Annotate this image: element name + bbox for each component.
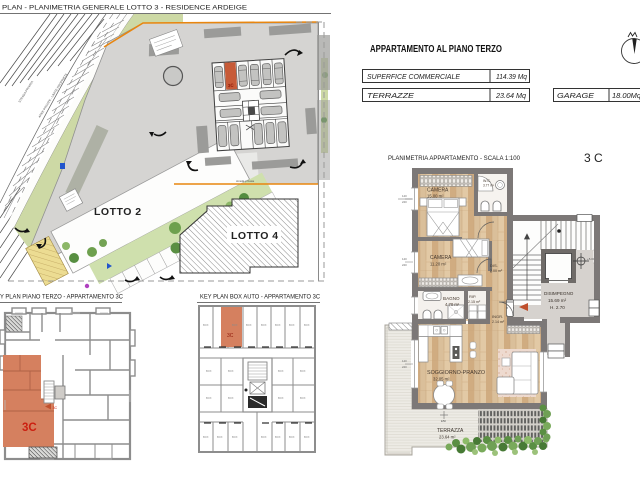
svg-text:BOX: BOX	[232, 323, 238, 327]
svg-text:140: 140	[402, 194, 407, 198]
svg-text:BOX: BOX	[246, 323, 252, 327]
svg-text:15.69 m²: 15.69 m²	[548, 298, 567, 303]
svg-text:PLANIMETRIA APPARTAMENTO - SC: PLANIMETRIA APPARTAMENTO - SCALA 1:100	[388, 155, 521, 162]
svg-text:LOTTO 2: LOTTO 2	[94, 206, 142, 218]
svg-text:KEY PLAN BOX AUTO - APPARTAMEN: KEY PLAN BOX AUTO - APPARTAMENTO 3C	[200, 295, 321, 301]
svg-text:RIP.: RIP.	[469, 294, 476, 299]
svg-text:4.70 m²: 4.70 m²	[445, 302, 460, 307]
svg-text:BOX: BOX	[228, 396, 234, 400]
svg-text:3C: 3C	[22, 422, 37, 434]
svg-text:2.00 m²: 2.00 m²	[490, 269, 503, 273]
svg-text:DISIMPEGNO: DISIMPEGNO	[544, 291, 574, 296]
svg-text:TERRAZZE: TERRAZZE	[367, 91, 414, 100]
svg-text:3.77 m²: 3.77 m²	[483, 184, 494, 188]
svg-text:23.64 Mq: 23.64 Mq	[495, 91, 527, 100]
svg-text:BOX: BOX	[217, 435, 223, 439]
svg-text:15.00 m²: 15.00 m²	[427, 194, 444, 199]
svg-text:E50: E50	[441, 419, 446, 423]
svg-text:INGR.: INGR.	[492, 314, 503, 319]
svg-text:PLAN - PLANIMETRIA GENERALE L: PLAN - PLANIMETRIA GENERALE LOTTO 3 - RE…	[2, 5, 247, 12]
svg-text:240: 240	[402, 263, 407, 267]
svg-text:240: 240	[402, 365, 407, 369]
svg-text:3C: 3C	[53, 406, 58, 410]
svg-text:AREE PRIVATE - LIMITE PROPRIET: AREE PRIVATE - LIMITE PROPRIETA	[37, 73, 68, 119]
svg-text:W.C.: W.C.	[483, 179, 491, 183]
svg-text:3 C: 3 C	[584, 151, 603, 165]
svg-text:18.00Mq: 18.00Mq	[612, 91, 640, 100]
svg-text:240: 240	[402, 200, 407, 204]
svg-text:STRADA PRIVATA: STRADA PRIVATA	[17, 80, 34, 103]
svg-text:BOX: BOX	[304, 435, 310, 439]
svg-text:BOX: BOX	[275, 435, 281, 439]
svg-text:TERRAZZA: TERRAZZA	[437, 428, 464, 434]
svg-text:DIS.: DIS.	[490, 263, 498, 268]
svg-text:BOX: BOX	[261, 435, 267, 439]
svg-text:BOX: BOX	[232, 435, 238, 439]
svg-text:SOGGIORNO-PRANZO: SOGGIORNO-PRANZO	[427, 370, 485, 376]
svg-text:23.64 m²: 23.64 m²	[439, 435, 456, 440]
svg-text:GARAGE: GARAGE	[557, 91, 594, 100]
svg-text:H. 2.70: H. 2.70	[550, 305, 565, 310]
svg-text:114.39 Mq: 114.39 Mq	[496, 72, 528, 81]
svg-text:2.15 m²: 2.15 m²	[468, 300, 481, 304]
svg-text:APPARTAMENTO AL PIANO TERZO: APPARTAMENTO AL PIANO TERZO	[370, 44, 502, 55]
svg-text:BOX: BOX	[289, 435, 295, 439]
svg-text:strada privata: strada privata	[236, 179, 255, 183]
svg-text:BOX: BOX	[278, 396, 284, 400]
svg-text:BOX: BOX	[203, 323, 209, 327]
svg-text:BOX: BOX	[300, 396, 306, 400]
svg-text:BOX: BOX	[203, 435, 209, 439]
svg-text:140: 140	[402, 257, 407, 261]
svg-text:LOTTO 4: LOTTO 4	[231, 230, 279, 242]
svg-text:3C: 3C	[227, 333, 234, 339]
svg-text:+5.00: +5.00	[587, 257, 595, 261]
svg-text:140: 140	[402, 359, 407, 363]
svg-text:BOX: BOX	[206, 369, 212, 373]
svg-text:BOX: BOX	[289, 323, 295, 327]
svg-text:BOX: BOX	[206, 396, 212, 400]
svg-text:BOX: BOX	[261, 323, 267, 327]
svg-text:BOX: BOX	[275, 323, 281, 327]
svg-text:CAMERA: CAMERA	[430, 255, 452, 261]
svg-text:BOX: BOX	[304, 323, 310, 327]
svg-text:BOX: BOX	[278, 369, 284, 373]
svg-text:2.14 m²: 2.14 m²	[492, 320, 505, 324]
svg-text:11.20 m²: 11.20 m²	[430, 262, 447, 267]
svg-text:SUPERFICE COMMERCIALE: SUPERFICE COMMERCIALE	[367, 72, 460, 81]
svg-text:BOX: BOX	[300, 369, 306, 373]
svg-text:3C: 3C	[228, 83, 235, 88]
svg-text:BOX: BOX	[228, 369, 234, 373]
svg-text:BAGNO: BAGNO	[443, 296, 460, 301]
svg-text:Y PLAN PIANO TERZO - APPARTAME: Y PLAN PIANO TERZO - APPARTAMENTO 3C	[0, 295, 124, 301]
